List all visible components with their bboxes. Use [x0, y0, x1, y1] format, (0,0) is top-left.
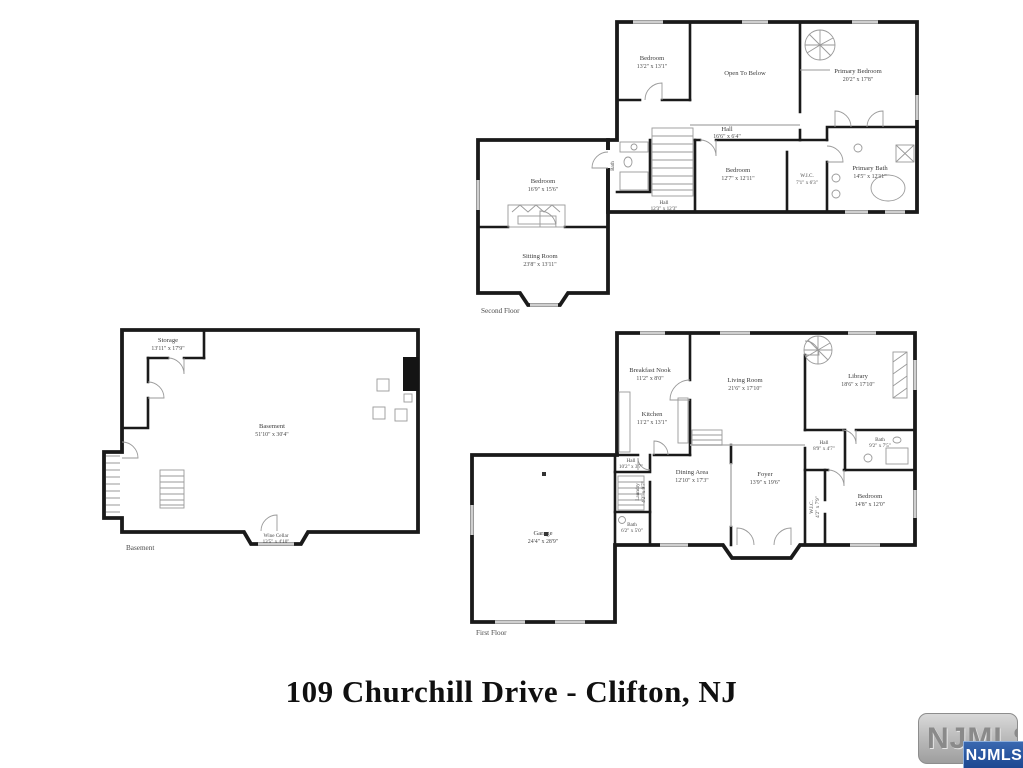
room-dims: 14'5" x 12'11"	[853, 174, 887, 180]
room-label: Kitchen	[642, 411, 664, 418]
room-dims: 10'2" x 3'7"	[619, 464, 643, 470]
room-dims: 11'2" x 13'1"	[637, 420, 668, 426]
room-dims: 12'10" x 17'3"	[675, 478, 709, 484]
room-dims: 9'2" x 7'5"	[869, 443, 891, 449]
basement-labels: Storage 13'11" x 17'9" Basement 51'10" x…	[126, 337, 289, 552]
basement-plan: Storage 13'11" x 17'9" Basement 51'10" x…	[104, 330, 419, 552]
room-label: Bedroom	[858, 493, 883, 500]
room-dims: 4'2" x 7'9"	[815, 496, 821, 518]
room-label: Living Room	[727, 377, 763, 384]
first-floor-plan: Breakfast Nook 11'2" x 8'0" Kitchen 11'2…	[472, 333, 915, 637]
floor-caption-first: First Floor	[476, 629, 507, 637]
room-label: Sitting Room	[522, 253, 558, 260]
room-dims: 51'10" x 30'4"	[255, 432, 289, 438]
room-label: Storage	[158, 337, 178, 344]
floorplan-drawing: Bedroom 13'2" x 13'1" Open To Below Prim…	[0, 0, 1023, 768]
room-dims: 11'2" x 8'0"	[636, 376, 664, 382]
room-dims: 24'4" x 28'9"	[528, 539, 559, 545]
room-label: Hall	[721, 126, 733, 133]
room-label: Bedroom	[726, 167, 751, 174]
basement-details	[106, 357, 419, 544]
room-label-laundry-vertical: Laundry 4'2" x 9'7"	[635, 481, 647, 503]
room-label: Dining Area	[676, 469, 708, 476]
room-dims: 13'5" x 4'10"	[263, 539, 290, 545]
room-dims: 14'8" x 12'0"	[855, 502, 886, 508]
second-floor-plan: Bedroom 13'2" x 13'1" Open To Below Prim…	[478, 22, 917, 315]
room-dims: 23'8" x 13'11"	[523, 262, 557, 268]
room-label: Open To Below	[724, 70, 766, 77]
room-dims: 12'3" x 12'3"	[651, 206, 678, 212]
room-dims: 4'2" x 9'7"	[641, 481, 647, 503]
room-label: Garage	[533, 530, 552, 537]
room-label: Primary Bath	[852, 165, 888, 172]
room-dims: 12'7" x 12'11"	[721, 176, 755, 182]
room-dims: 13'11" x 17'9"	[151, 346, 185, 352]
room-dims: 21'6" x 17'10"	[728, 386, 762, 392]
property-address-title: 109 Churchill Drive - Clifton, NJ	[0, 674, 1023, 710]
room-label: Foyer	[757, 471, 773, 478]
room-label: Bedroom	[640, 55, 665, 62]
room-label: Bedroom	[531, 178, 556, 185]
njmls-logo: NJMLS	[963, 741, 1023, 768]
room-label: Library	[848, 373, 868, 380]
room-dims: 8'9" x 4'7"	[813, 446, 835, 452]
room-dims: 7'1" x 6'3"	[796, 180, 818, 186]
room-label: Breakfast Nook	[629, 367, 671, 374]
floor-caption-second: Second Floor	[481, 307, 520, 315]
room-dims: 13'2" x 13'1"	[637, 64, 668, 70]
floor-caption-basement: Basement	[126, 544, 154, 552]
room-dims: 18'6" x 17'10"	[841, 382, 875, 388]
room-label: W.I.C.	[800, 173, 814, 179]
room-dims: 13'9" x 19'6"	[750, 480, 781, 486]
njmls-logo-label: NJMLS	[966, 747, 1023, 765]
room-label: Basement	[259, 423, 285, 430]
floorplan-sheet: Bedroom 13'2" x 13'1" Open To Below Prim…	[0, 0, 1023, 768]
room-dims: 6'2" x 5'0"	[621, 528, 643, 534]
room-dims: 20'2" x 17'8"	[843, 77, 874, 83]
room-dims: 16'9" x 15'6"	[528, 187, 559, 193]
room-label: Primary Bedroom	[834, 68, 882, 75]
first-floor-labels: Breakfast Nook 11'2" x 8'0" Kitchen 11'2…	[476, 367, 891, 637]
room-label: Bath	[610, 161, 616, 171]
room-label-wic-vertical: W.I.C. 4'2" x 7'9"	[809, 496, 821, 518]
room-dims: 16'6" x 6'4"	[713, 134, 741, 140]
